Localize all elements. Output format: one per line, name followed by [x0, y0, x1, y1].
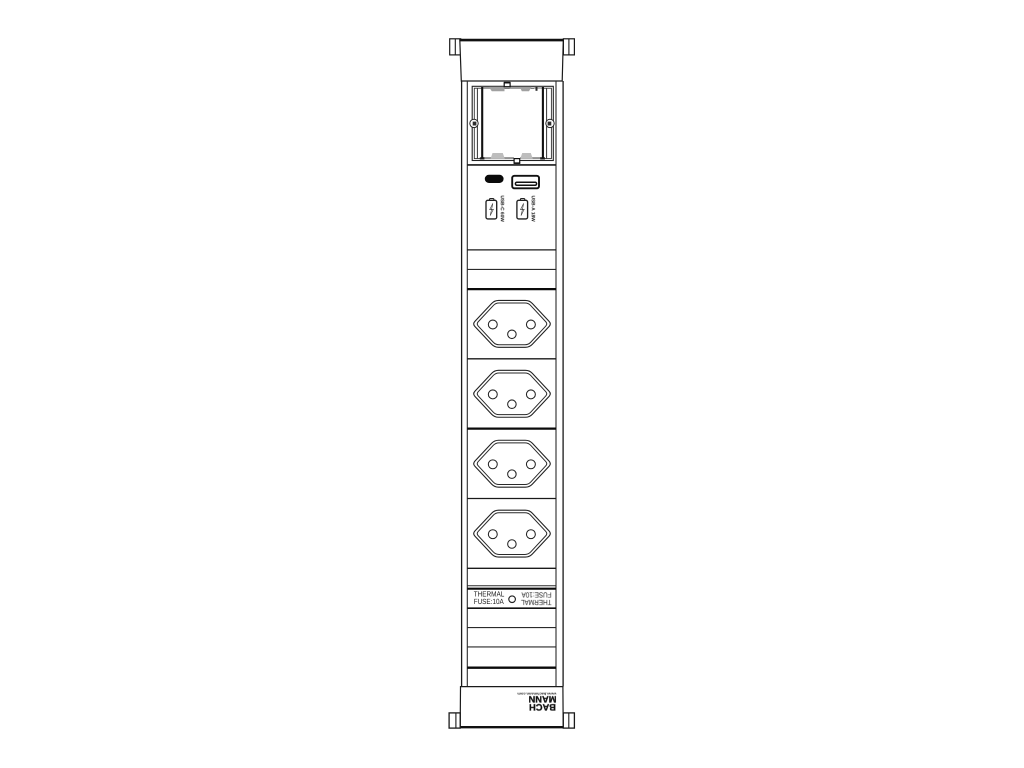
svg-text:www.bachmann.com: www.bachmann.com [517, 691, 557, 695]
svg-text:FUSE:10A: FUSE:10A [522, 591, 552, 600]
svg-text:USB-C 60W: USB-C 60W [499, 195, 505, 222]
svg-text:USB-A 18W: USB-A 18W [530, 195, 536, 222]
svg-text:FUSE:10A: FUSE:10A [474, 597, 504, 606]
